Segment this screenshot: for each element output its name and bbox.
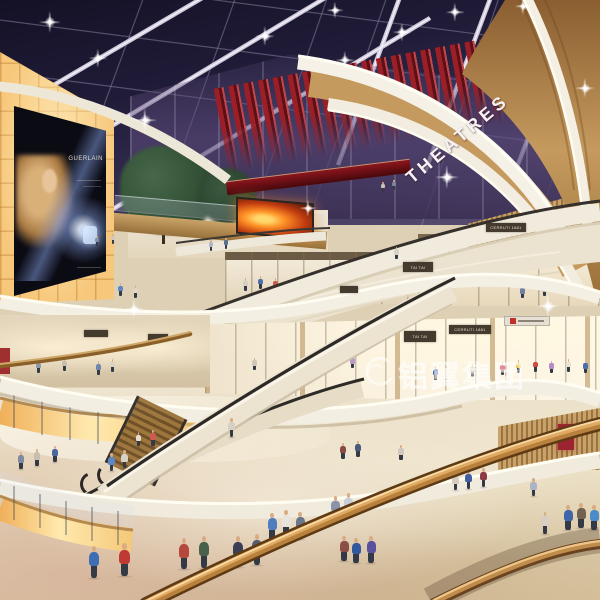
billboard-text-line: [77, 180, 101, 181]
red-store-accent-left: [0, 348, 10, 374]
red-store-accent-right: [558, 424, 574, 450]
watermark: 铝翼集团: [358, 350, 548, 398]
billboard-light-burst: [49, 190, 106, 270]
spotlight-sparkle-icon: [129, 304, 140, 315]
mall-atrium-render: THEATRES GUERLAIN: [0, 0, 600, 600]
level2-corridor-left: [0, 315, 210, 387]
billboard-text-line: [77, 267, 101, 268]
person: [133, 285, 138, 298]
billboard-brand-text: GUERLAIN: [68, 156, 103, 162]
led-screen: [236, 197, 314, 241]
perfume-billboard: GUERLAIN: [14, 106, 106, 296]
billboard-text-line: [83, 186, 101, 187]
watermark-text: 铝翼集团: [398, 352, 526, 396]
watermark-logo-icon: [358, 354, 398, 394]
perfume-bottle: [83, 226, 97, 244]
level3-storefronts-center: [225, 252, 425, 304]
person: [118, 283, 123, 296]
